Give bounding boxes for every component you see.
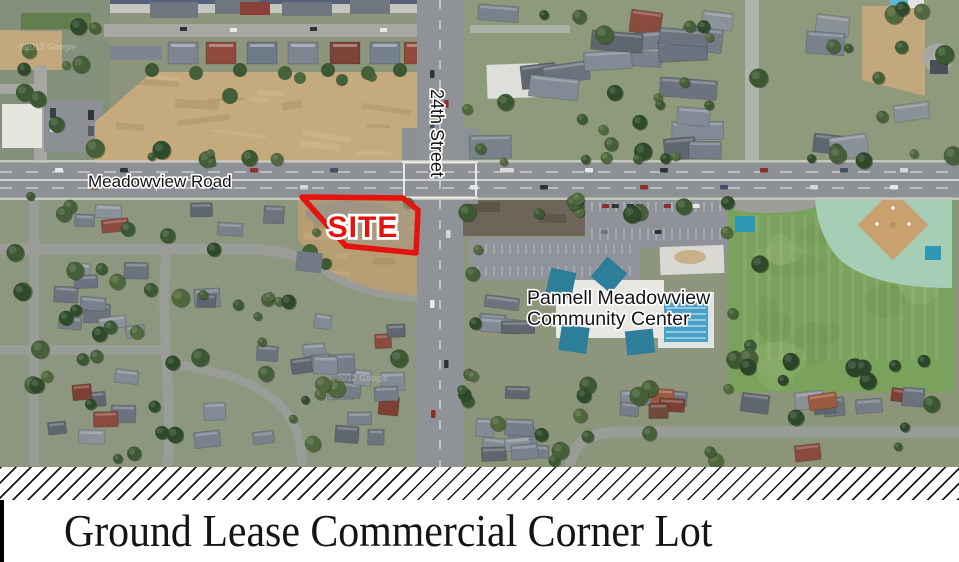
- 24th-street-label: 24th Street: [427, 89, 447, 177]
- aerial-map: SITE Meadowview Road 24th Street Pannell…: [0, 0, 959, 467]
- page-title: Ground Lease Commercial Corner Lot: [64, 505, 712, 557]
- site-label: SITE: [328, 211, 399, 244]
- footer: Ground Lease Commercial Corner Lot: [0, 500, 959, 562]
- aerial-map-wrap: SITE Meadowview Road 24th Street Pannell…: [0, 0, 959, 467]
- map-watermark-2: ©2012 Google: [330, 373, 388, 383]
- map-watermark-1: ©2012 Google: [18, 42, 76, 52]
- meadowview-road-label: Meadowview Road: [88, 172, 232, 191]
- community-center-label-line1: Pannell Meadowview: [527, 287, 711, 309]
- flyer-page: SITE Meadowview Road 24th Street Pannell…: [0, 0, 959, 562]
- community-center-label-line2: Community Center: [527, 308, 690, 330]
- hatch-divider: [0, 467, 959, 500]
